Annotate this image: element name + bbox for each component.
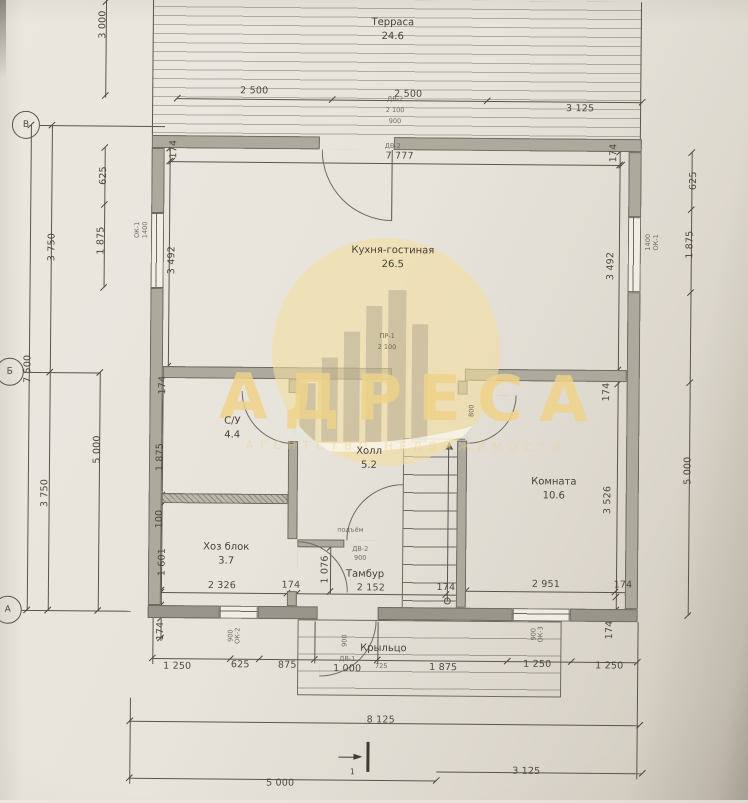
dim-label: 1 000 [333,663,361,674]
dim-label: 1 875 [429,662,457,673]
dim-label: 5 000 [682,456,693,484]
dim-label: 7 777 [386,150,414,161]
stair-up-arrow-icon [445,442,453,450]
dim-tick [102,92,109,99]
stair-start-marker [444,598,451,605]
door-window-mark: ОК-1 [652,234,660,250]
dim-line [98,373,101,611]
dim-label: 3 492 [166,246,177,274]
door-window-mark: 2 100 [378,343,397,351]
window-symbol [628,217,642,292]
dim-line [129,698,131,784]
dim-label: 174 [155,622,166,641]
door-window-mark: 800 [467,405,475,417]
door-window-mark: 900 [226,629,234,641]
dim-label: 1 875 [154,443,165,471]
room-label-porch: Крыльцо [360,642,407,656]
wall-segment [151,148,165,213]
wall-segment [628,152,642,217]
wall-segment [465,369,627,382]
room-label-room: Комната10.6 [531,475,577,503]
door-window-mark: ДВ-1 [339,655,355,663]
dim-label: 174 [168,140,179,159]
dim-line [161,592,287,594]
dim-label: 174 [604,621,615,640]
dim-line [24,372,100,374]
window-symbol [220,606,258,619]
dim-label: 625 [688,171,699,190]
dim-tick [684,612,691,619]
floor-plan: 2 5002 5003 1257 7773 0006251 8753 7507 … [0,0,748,803]
door-window-mark: 2 100 [386,106,405,114]
wall-segment [378,607,513,621]
floor-plan-photo: { "meta": {"type": "floor-plan", "langua… [0,0,748,800]
dim-label: 174 [282,580,301,591]
door-window-mark: 1400 [644,234,652,251]
door-window-mark: 900 [389,117,401,125]
window-symbol [513,608,570,621]
dim-label: 100 [154,510,165,529]
dim-label: 7 500 [22,355,33,383]
door-window-mark: ОК-2 [233,628,241,644]
dim-label: 174 [157,376,168,395]
wall-segment [163,366,392,380]
dim-label: 3 526 [602,486,613,514]
door-window-mark: ДВ-2 [387,95,403,103]
wall-segment [258,606,318,620]
axis-1-tick [366,742,369,772]
dim-label: 3 125 [566,103,594,114]
dim-label: 1 250 [595,660,623,671]
dim-line [640,2,642,139]
dim-line [466,591,636,593]
dim-line [636,622,638,779]
wall-segment [287,441,298,539]
room-label-kitchen-living: Кухня-гостиная26.5 [351,244,434,273]
dim-line [40,125,165,127]
room-label-hall: Холл5.2 [356,445,382,473]
dim-label: 3 492 [605,252,616,280]
dim-label: 1 601 [157,548,168,576]
door-window-mark: ДВ-2 [385,142,401,150]
door-window-mark: ОК-1 [133,222,141,238]
wall-segment [394,137,642,152]
dim-label: 5 000 [91,435,102,463]
door-window-mark: 900 [529,628,537,640]
dim-label: 174 [614,580,633,591]
dim-label: 1 250 [523,659,551,670]
dim-label: 174 [608,144,619,163]
axis-marker-В: В [12,111,40,139]
door-arc [241,391,294,444]
window-symbol [151,213,165,288]
dim-label: 625 [231,659,250,670]
axis-marker-1: 1 [350,767,355,776]
room-label-terrace: Терраса24.6 [371,16,414,44]
dim-label: 2 152 [357,582,385,593]
dim-line [22,610,131,612]
dim-label: 3 000 [97,10,108,38]
wall-segment [456,441,467,608]
wall-segment [625,292,641,609]
door-window-mark: подъём [337,526,363,534]
door-window-mark: ПР-1 [379,332,394,340]
dim-label: 1 076 [319,555,330,583]
dim-label: 3 750 [39,479,50,507]
door-window-mark: ДВ-2 [352,545,368,553]
dim-label: 2 500 [240,85,268,96]
photo-edge-shadow [0,0,6,78]
dim-label: 3 750 [46,233,57,261]
door-window-mark: ОК-3 [536,626,544,642]
door-arc [467,395,516,444]
axis-marker-Б: Б [0,358,24,386]
wall-segment [458,381,468,395]
wall-segment [148,605,220,619]
dim-label: 5 000 [266,777,294,788]
dim-label: 2 326 [208,580,236,591]
door-window-mark: 1400 [141,222,149,239]
dim-tick [639,770,646,777]
wall-segment [287,591,297,606]
dim-label: 2 951 [532,579,560,590]
dim-label: 8 125 [367,714,395,725]
axis-marker-А: А [0,596,22,624]
dim-label: 3 125 [512,766,540,777]
wall-segment [162,493,288,504]
dim-label: 1 875 [684,231,695,259]
dim-label: 875 [278,660,297,671]
dim-label: 1 875 [95,226,106,254]
dim-line [172,161,622,166]
door-arc [321,149,393,221]
axis-1-arrow-stem [338,757,354,758]
door-window-mark: 725 [375,662,387,670]
dim-label: 1 250 [163,661,191,672]
room-label-vestibule: Тамбур [346,568,384,582]
door-window-mark: 900 [354,554,366,562]
room-label-bathroom: С/У4.4 [224,415,241,443]
dim-label: 174 [437,582,456,593]
dim-tick [433,777,440,784]
room-label-utility: Хоз блок3.7 [203,540,249,568]
dim-label: 625 [98,166,109,185]
dim-tick [100,284,107,291]
dim-label: 174 [601,383,612,402]
door-window-mark: 900 [340,634,348,646]
axis-1-arrow-icon [353,754,362,760]
